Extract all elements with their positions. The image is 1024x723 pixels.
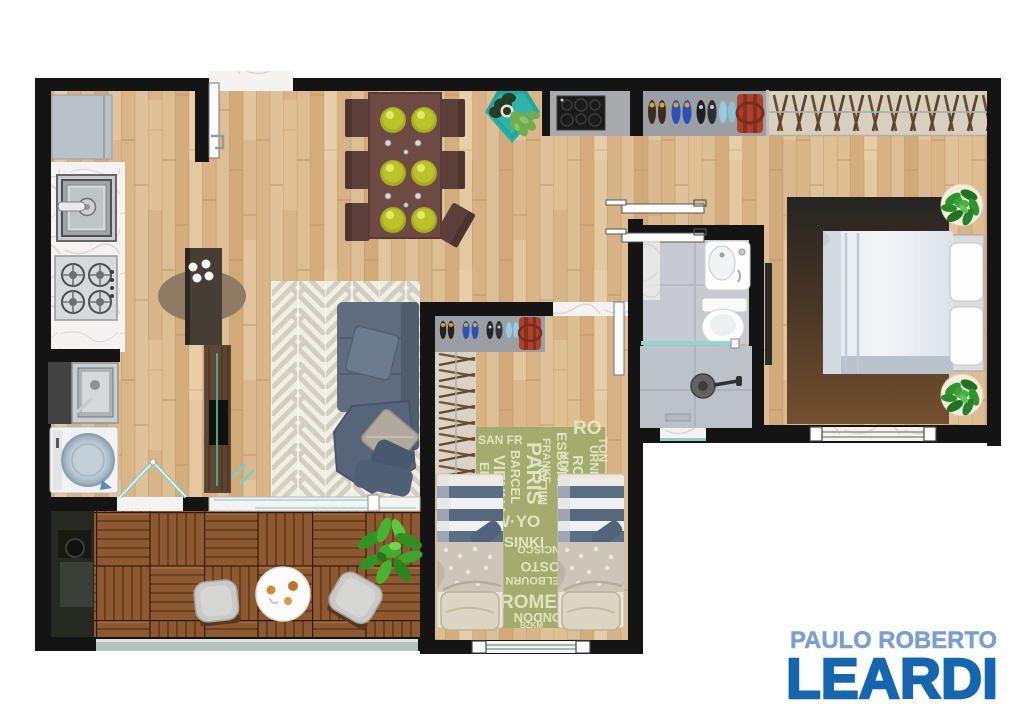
- svg-text:LEARDI: LEARDI: [786, 647, 998, 711]
- svg-text:BARCEL: BARCEL: [508, 450, 523, 504]
- svg-text:BZKM: BZKM: [520, 621, 543, 630]
- svg-text:SAN FR: SAN FR: [478, 433, 523, 447]
- svg-text:ROME: ROME: [500, 592, 557, 613]
- svg-text:RO: RO: [573, 418, 602, 439]
- svg-text:MILAN: MILAN: [535, 464, 550, 505]
